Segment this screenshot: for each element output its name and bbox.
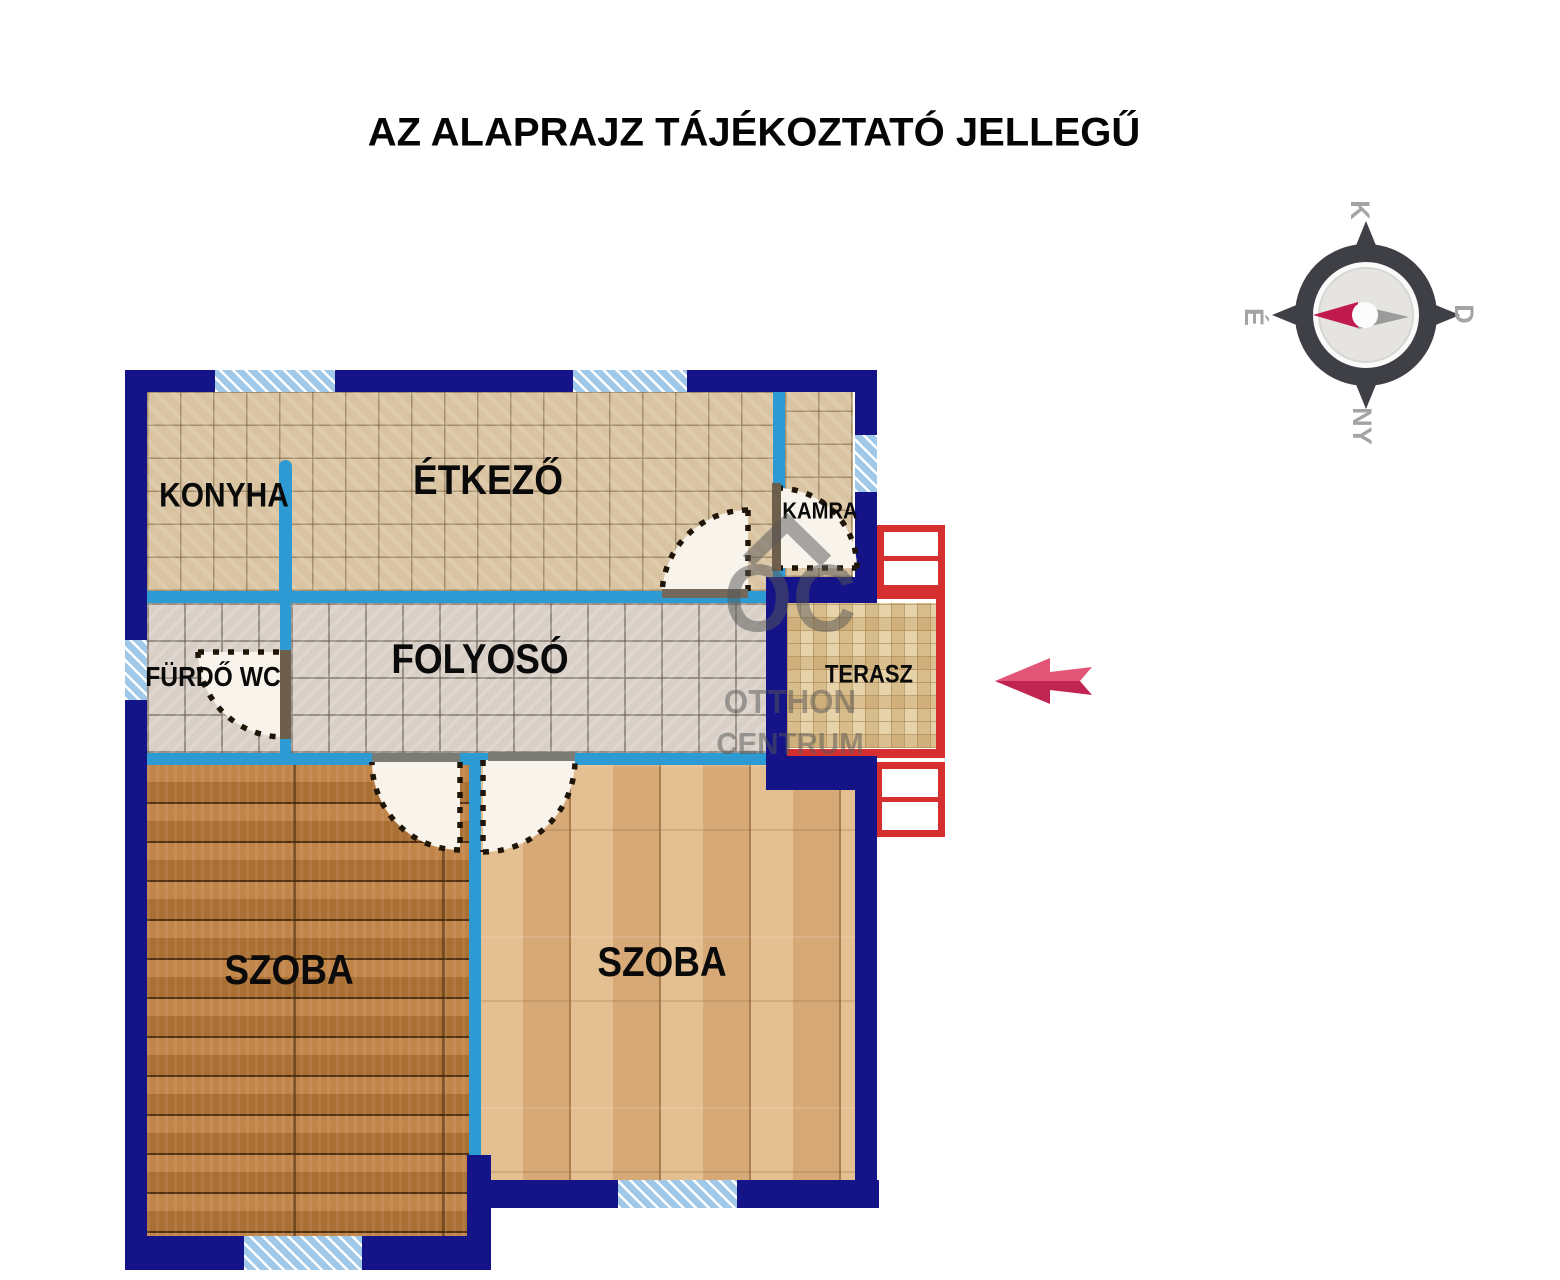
room-label-etkezo: ÉTKEZŐ (413, 456, 563, 504)
floor-szoba-left (147, 765, 469, 1236)
compass-label-left: É (1242, 308, 1266, 326)
room-label-konyha: KONYHA (159, 477, 289, 516)
entrance-arrow-icon (995, 654, 1095, 708)
watermark-line1: OTTHON (705, 683, 876, 721)
wall-left (125, 370, 147, 1270)
railing-rung (884, 556, 938, 561)
compass-label-top: K (1348, 200, 1372, 220)
wall-corridor-top (147, 591, 770, 603)
room-label-szoba-right: SZOBA (597, 938, 726, 986)
watermark-line2: CENTRUM (705, 726, 876, 762)
room-label-szoba-left: SZOBA (224, 946, 353, 994)
window-bottom-szoba-right (618, 1180, 737, 1208)
page-title: AZ ALAPRAJZ TÁJÉKOZTATÓ JELLEGŰ (368, 111, 1141, 156)
wall-szoba-divider (469, 765, 481, 1155)
window-top-etkezo (573, 370, 687, 392)
watermark: OC OTTHON CENTRUM (700, 505, 880, 780)
window-top-konyha (215, 370, 335, 392)
wall-right-lower (855, 762, 877, 1208)
window-right-kamra (855, 435, 877, 492)
floorplan-page: AZ ALAPRAJZ TÁJÉKOZTATÓ JELLEGŰ (0, 0, 1560, 1280)
room-label-folyoso: FOLYOSÓ (391, 635, 568, 683)
terrace-railing-top (877, 525, 945, 592)
compass-label-right: D (1452, 304, 1476, 324)
window-bottom-szoba-left (244, 1236, 362, 1270)
compass-icon (1262, 205, 1470, 415)
window-left-furdo (125, 640, 147, 700)
wall-corridor-bottom (147, 753, 767, 765)
watermark-logo: OC (707, 551, 873, 647)
wall-furdo-folyoso (280, 603, 291, 753)
room-label-furdo-wc: FÜRDŐ WC (145, 661, 281, 693)
compass-label-bottom: NY (1350, 407, 1374, 445)
terrace-railing-bottom (875, 762, 945, 837)
railing-rung (882, 797, 938, 802)
